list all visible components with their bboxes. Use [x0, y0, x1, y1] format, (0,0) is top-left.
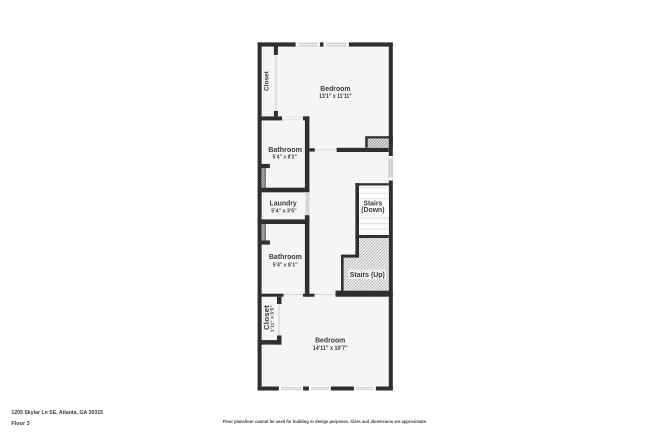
svg-text:1205 Skylar Ln SE, Atlanta, GA: 1205 Skylar Ln SE, Atlanta, GA 30315 — [11, 410, 103, 416]
svg-text:Laundry: Laundry — [270, 199, 298, 208]
svg-text:Bathroom: Bathroom — [268, 145, 302, 154]
svg-text:14’11” x 10’7”: 14’11” x 10’7” — [313, 346, 348, 352]
svg-text:Floor plans/tour cannot be use: Floor plans/tour cannot be used for buil… — [223, 419, 427, 424]
svg-text:Bedroom: Bedroom — [315, 336, 346, 345]
svg-text:Bedroom: Bedroom — [320, 84, 351, 93]
svg-text:(Down): (Down) — [361, 205, 385, 214]
svg-text:13’1” x 11’11”: 13’1” x 11’11” — [319, 94, 352, 100]
svg-text:Floor 3: Floor 3 — [11, 421, 29, 427]
svg-text:Bathroom: Bathroom — [269, 252, 302, 261]
svg-text:5’4” x 8’2”: 5’4” x 8’2” — [273, 155, 298, 161]
svg-text:Closet: Closet — [262, 305, 271, 330]
svg-text:Stairs (Up): Stairs (Up) — [350, 270, 386, 279]
svg-text:5’4” x 3’5”: 5’4” x 3’5” — [271, 209, 297, 215]
svg-text:1’11” x 5’5”: 1’11” x 5’5” — [270, 305, 276, 333]
svg-text:Closet: Closet — [264, 70, 271, 91]
svg-text:5’4” x 8’1”: 5’4” x 8’1” — [273, 262, 298, 268]
